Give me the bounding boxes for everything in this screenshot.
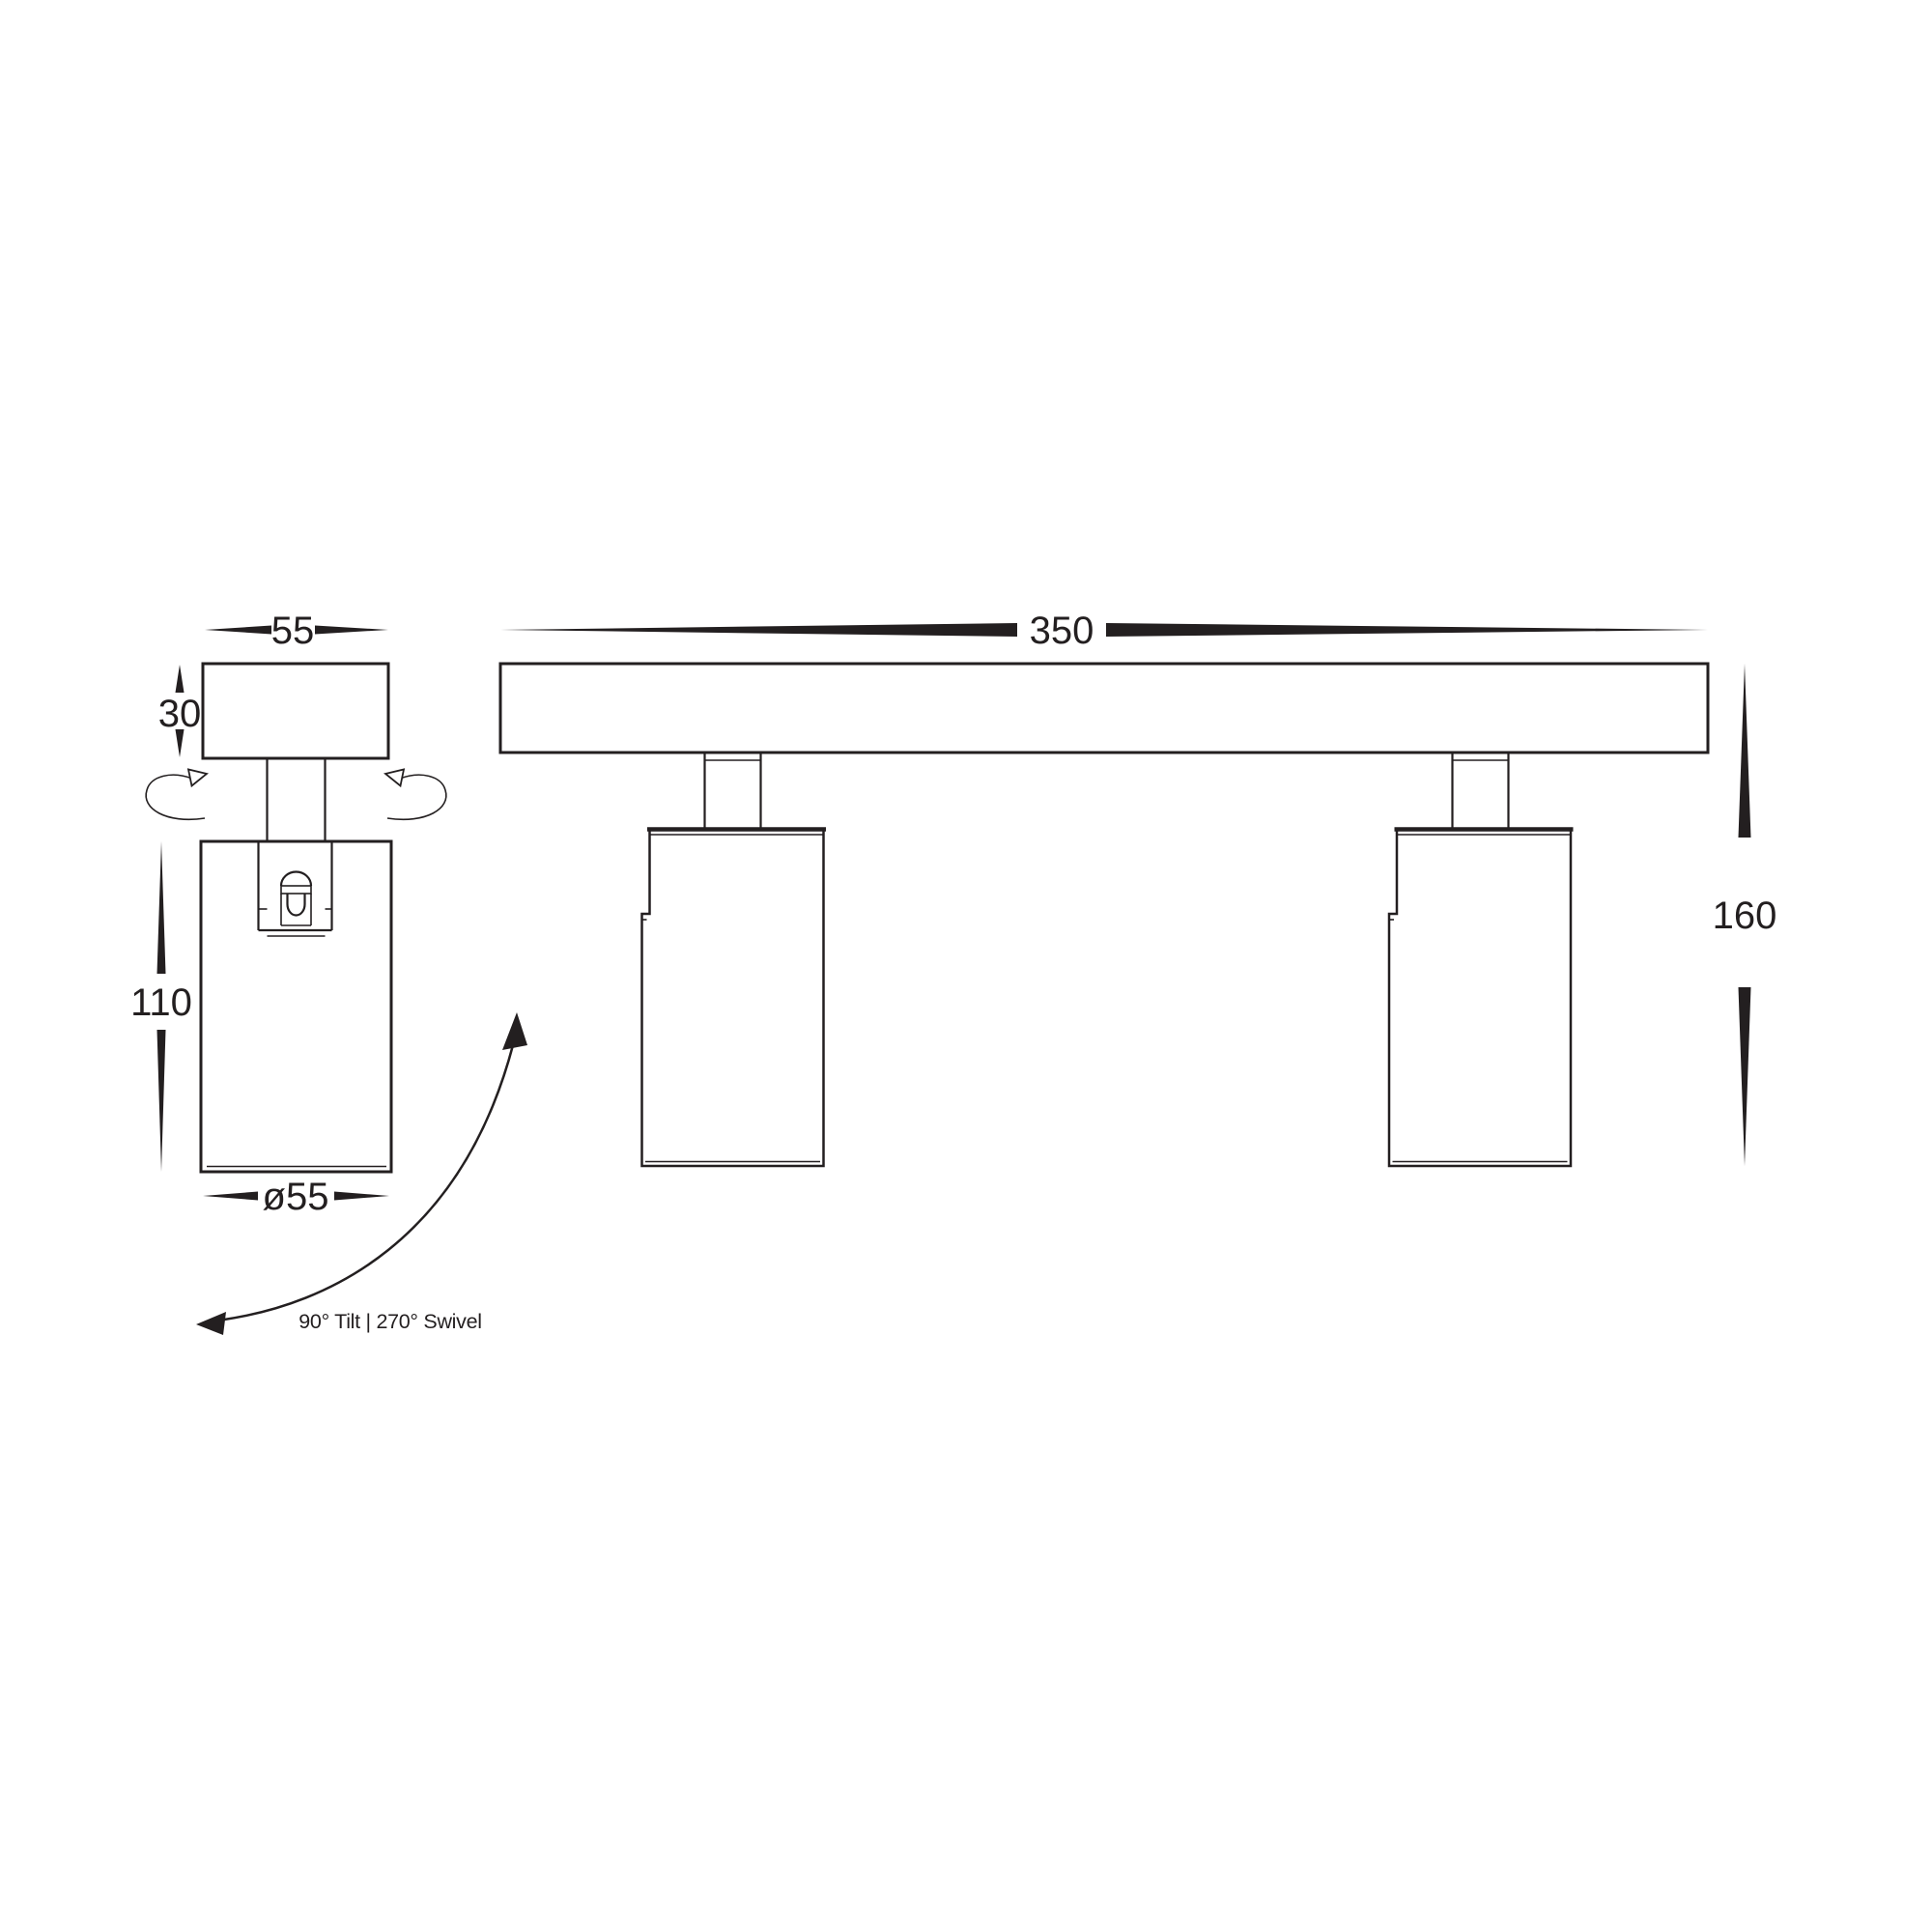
lamp-head-left — [642, 830, 827, 1167]
lamp-head-right — [1389, 830, 1574, 1167]
dim-taper-bottom — [1739, 987, 1751, 1166]
tilt-swivel-note: 90° Tilt | 270° Swivel — [298, 1310, 481, 1333]
dim-taper-left — [500, 623, 1017, 637]
bar-stem-right — [1453, 753, 1509, 829]
dim-taper-right — [1106, 623, 1708, 637]
dim-taper-top — [157, 841, 166, 974]
dim-label-overall-height: 160 — [1713, 895, 1777, 937]
dim-label-body-height: 110 — [130, 981, 192, 1024]
two-light-bar-side-view: 350 160 — [500, 610, 1776, 1166]
single-spotlight-front-view: 55 30 110 ø55 — [130, 610, 446, 1218]
tilt-arrowhead-up-icon — [502, 1012, 527, 1050]
dimension-bar-length: 350 — [500, 610, 1708, 652]
lamp-body-outline — [201, 841, 391, 1172]
dim-taper-left — [205, 626, 271, 635]
bar-stem-left — [705, 753, 761, 829]
dim-taper-top — [1739, 664, 1751, 838]
mounting-bar-outline — [500, 664, 1708, 753]
dim-label-bar-length: 350 — [1030, 610, 1094, 652]
tilt-arrowhead-left-icon — [196, 1312, 226, 1335]
dimension-body-diameter: ø55 — [203, 1176, 389, 1218]
dim-label-canopy-width: 55 — [271, 610, 315, 652]
dimension-body-height: 110 — [130, 841, 192, 1172]
dim-arrow-up — [176, 665, 185, 693]
head-profile — [642, 831, 824, 1166]
swivel-arrowhead-right-icon — [385, 770, 404, 786]
canopy-outline — [203, 664, 388, 758]
dim-taper-right — [334, 1192, 389, 1201]
dim-taper-bottom — [157, 1030, 166, 1172]
dim-taper-right — [315, 626, 388, 635]
dimension-drawing-canvas: 55 30 110 ø55 — [0, 0, 1932, 1932]
dim-taper-left — [203, 1192, 258, 1201]
spotlight-dimension-diagram: 55 30 110 ø55 — [0, 0, 1932, 1932]
dimension-canopy-height: 30 — [158, 665, 202, 757]
dim-label-canopy-height: 30 — [158, 693, 202, 735]
swivel-rotation-arrows — [146, 770, 446, 820]
dimension-canopy-width: 55 — [205, 610, 388, 652]
swivel-arrowhead-left-icon — [188, 770, 207, 786]
head-profile — [1389, 831, 1571, 1166]
dimension-overall-height: 160 — [1713, 664, 1777, 1166]
dim-label-body-diameter: ø55 — [263, 1176, 329, 1218]
